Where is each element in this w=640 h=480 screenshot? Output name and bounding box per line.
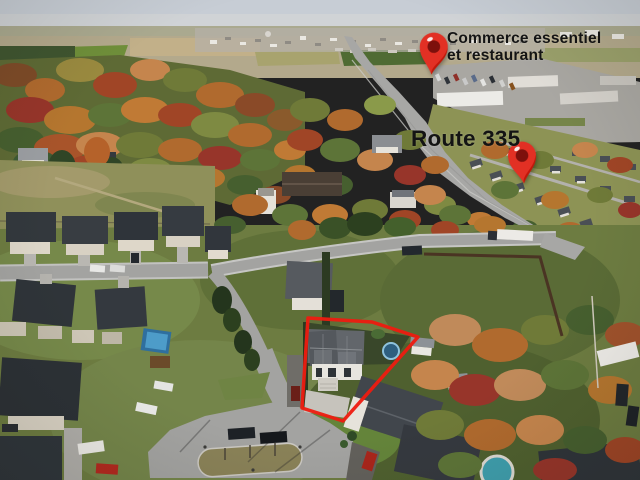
trailer-truck [497,229,533,241]
label-commerce-line2: et restaurant [447,48,601,65]
label-commerce: Commerce essentiel et restaurant [447,31,601,64]
label-commerce-line1: Commerce essentiel [447,31,601,48]
annotated-aerial-photo: Commerce essentiel et restaurant Route 3… [0,0,640,480]
map-pin-commerce-icon [416,26,450,80]
aerial-photo-scene [0,0,640,480]
backyard-pool [383,343,399,359]
house [205,226,231,259]
pickup [402,245,422,255]
round-pool [481,456,513,480]
label-route-335: Route 335 [411,127,520,151]
sky [0,0,640,30]
